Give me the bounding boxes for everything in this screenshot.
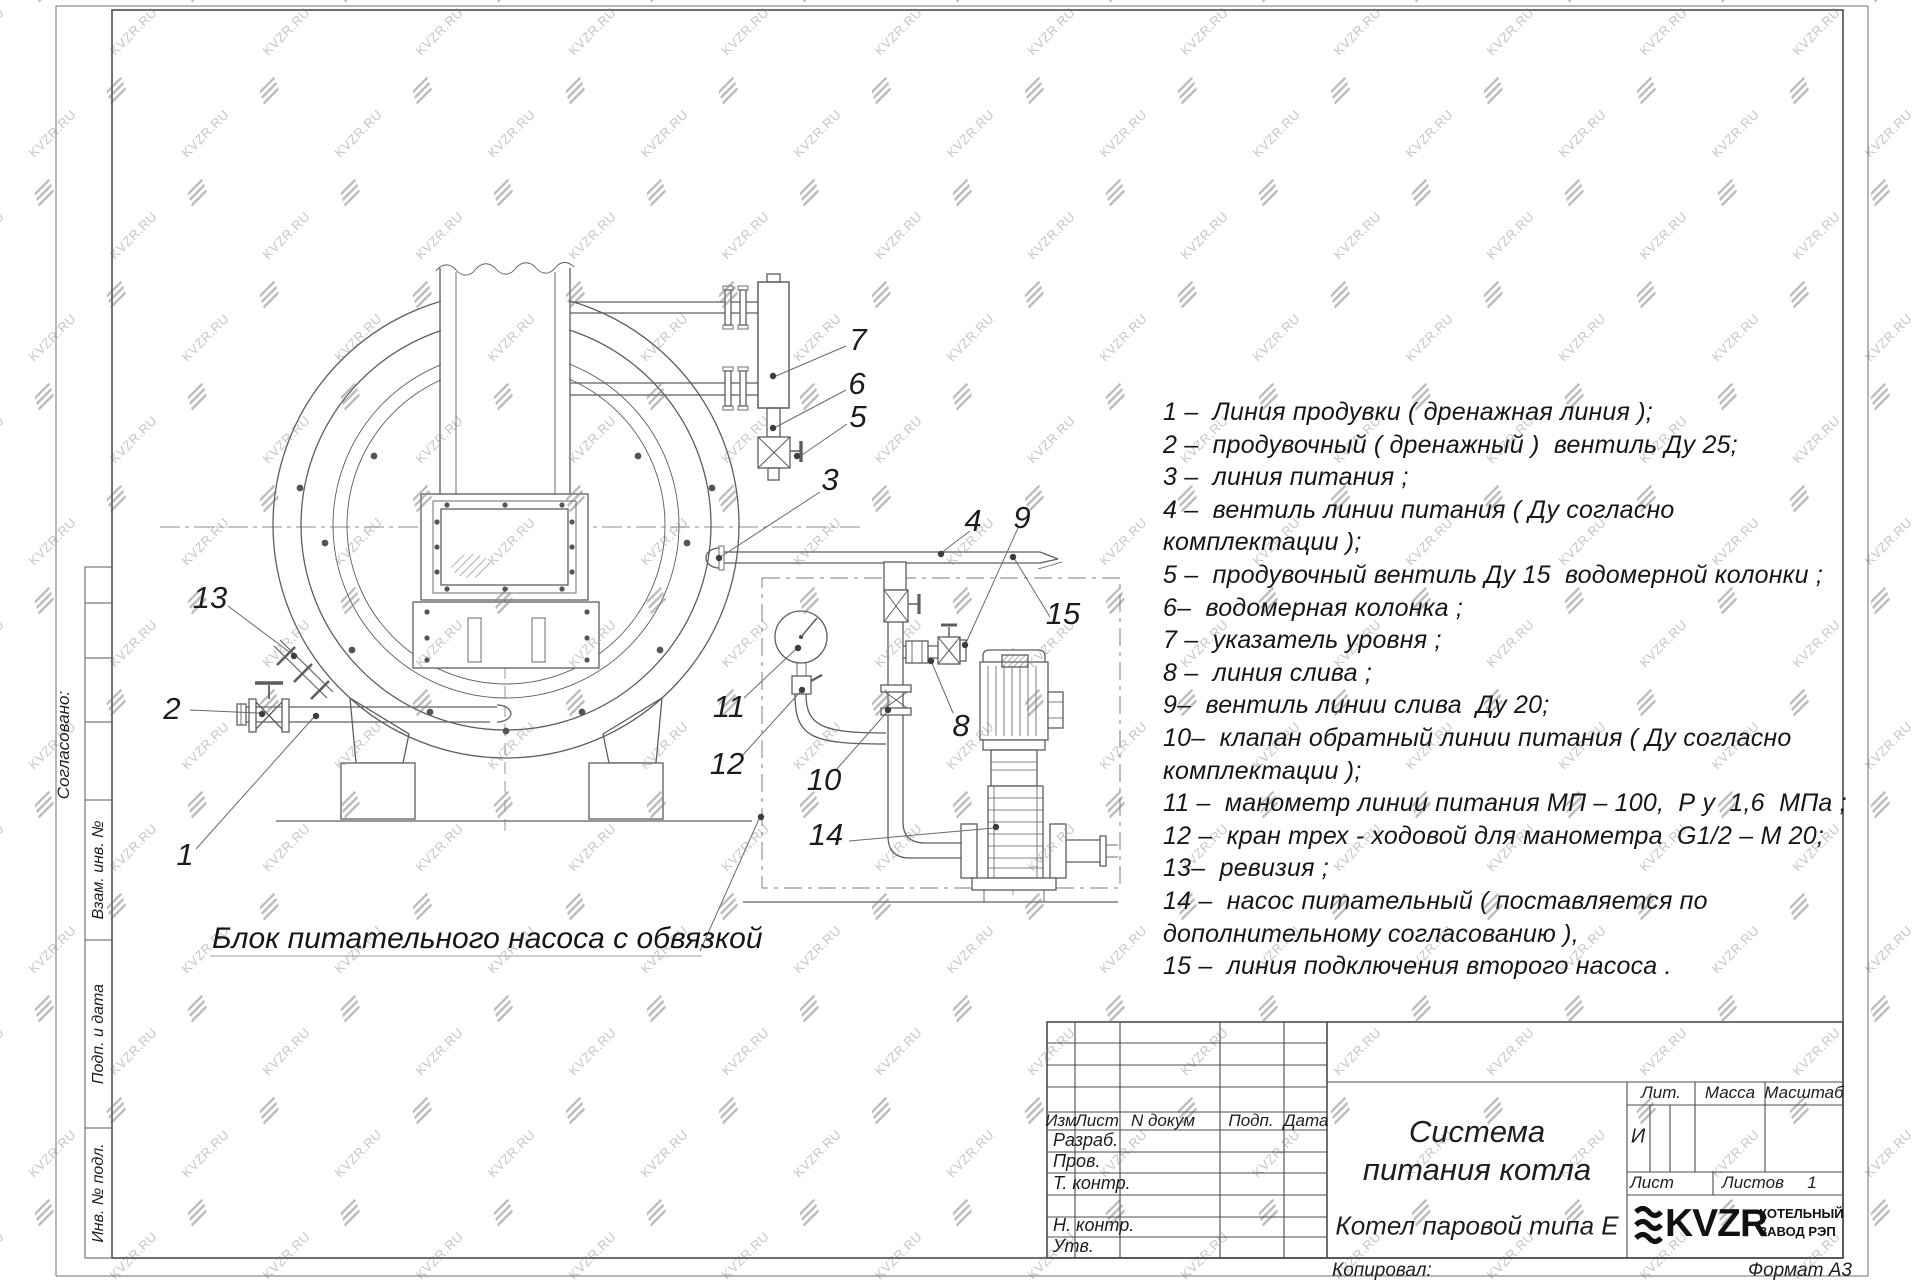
staff-row	[1053, 1194, 1173, 1215]
legend-row: 6– водомерная колонка ;	[1163, 592, 1863, 625]
drawing-sheet: 1 2 3 4 5 6 7 8 9 10 11 12 13 14 15 Блок…	[0, 0, 1920, 1280]
legend-row: 13– ревизия ;	[1163, 852, 1863, 885]
rev-header-izm: Изм	[1045, 1111, 1077, 1131]
staff-row: Т. контр.	[1053, 1173, 1173, 1194]
legend-row: дополнительному согласованию ),	[1163, 918, 1863, 951]
legend-list: 1 – Линия продувки ( дренажная линия );2…	[1163, 396, 1863, 983]
legend-row: 3 – линия питания ;	[1163, 461, 1863, 494]
legend-row: 5 – продувочный вентиль Ду 15 водомерной…	[1163, 559, 1863, 592]
doc-title-line2: питания котла	[1363, 1152, 1591, 1188]
staff-row: Пров.	[1053, 1151, 1173, 1172]
callout-10: 10	[807, 762, 841, 798]
boiler-view	[160, 263, 860, 839]
listov-label: Листов	[1722, 1173, 1784, 1193]
legend-row: 14 – насос питательный ( поставляется по	[1163, 885, 1863, 918]
listov-value: 1	[1807, 1173, 1816, 1193]
margin-label-vzam: Взам. инв. №	[90, 821, 108, 920]
legend-row: 8 – линия слива ;	[1163, 657, 1863, 690]
kvzr-logo-text: KVZR	[1665, 1202, 1767, 1246]
rev-header-ndoc: N докум	[1131, 1111, 1195, 1131]
rev-header-list: Лист	[1075, 1111, 1119, 1131]
lit-label: Лит.	[1641, 1083, 1681, 1103]
callout-9: 9	[1013, 500, 1030, 536]
callout-13: 13	[193, 580, 227, 616]
callout-7: 7	[849, 322, 866, 358]
legend-row: 10– клапан обратный линии питания ( Ду с…	[1163, 722, 1863, 755]
legend-row: комплектации );	[1163, 526, 1863, 559]
pump-block-label: Блок питательного насоса с обвязкой	[212, 922, 763, 956]
callout-12: 12	[710, 746, 744, 782]
list-label: Лист	[1630, 1173, 1674, 1193]
staff-row: Разраб.	[1053, 1130, 1173, 1151]
kvzr-logo-waves	[1633, 1204, 1663, 1248]
masshtab-label: Масштаб	[1764, 1083, 1843, 1103]
callout-15: 15	[1046, 596, 1080, 632]
margin-label-soglasovano: Согласовано:	[54, 691, 74, 799]
kvzr-logo: KVZR КОТЕЛЬНЫЙ ЗАВОД РЭП	[1633, 1200, 1843, 1256]
lit-value: И	[1631, 1126, 1645, 1149]
callout-4: 4	[964, 503, 981, 539]
staff-rows: Разраб.Пров.Т. контр.Н. контр.Утв.	[1053, 1130, 1173, 1258]
callout-11: 11	[713, 689, 745, 725]
doc-title-line1: Система	[1409, 1114, 1545, 1150]
callout-1: 1	[176, 837, 193, 873]
kvzr-caption-2: ЗАВОД РЭП	[1759, 1224, 1836, 1240]
staff-row: Н. контр.	[1053, 1215, 1173, 1236]
legend-row: 2 – продувочный ( дренажный ) вентиль Ду…	[1163, 429, 1863, 462]
callout-3: 3	[821, 462, 838, 498]
callout-8: 8	[952, 708, 969, 744]
doc-subtitle: Котел паровой типа Е	[1335, 1211, 1618, 1242]
callout-5: 5	[849, 399, 866, 435]
margin-label-inv-podl: Инв. № подл.	[90, 1143, 108, 1242]
rev-header-data: Дата	[1284, 1111, 1329, 1131]
kopiroval-label: Копировал:	[1332, 1260, 1432, 1280]
format-label: Формат А3	[1748, 1260, 1852, 1280]
margin-label-podp-data: Подп. и дата	[90, 984, 108, 1084]
rev-header-podp: Подп.	[1228, 1111, 1273, 1131]
legend-row: 11 – манометр линии питания МП – 100, Р …	[1163, 787, 1863, 820]
staff-row: Утв.	[1053, 1236, 1173, 1257]
legend-row: 1 – Линия продувки ( дренажная линия );	[1163, 396, 1863, 429]
kvzr-caption-1: КОТЕЛЬНЫЙ	[1759, 1206, 1844, 1222]
callout-14: 14	[809, 817, 843, 853]
legend-row: 7 – указатель уровня ;	[1163, 624, 1863, 657]
legend-row: комплектации );	[1163, 755, 1863, 788]
legend-row: 4 – вентиль линии питания ( Ду согласно	[1163, 494, 1863, 527]
legend-row: 9– вентиль линии слива Ду 20;	[1163, 689, 1863, 722]
callout-2: 2	[163, 691, 180, 727]
massa-label: Масса	[1705, 1083, 1755, 1103]
legend-row: 12 – кран трех - ходовой для манометра G…	[1163, 820, 1863, 853]
callout-6: 6	[848, 366, 865, 402]
legend-row: 15 – линия подключения второго насоса .	[1163, 950, 1863, 983]
